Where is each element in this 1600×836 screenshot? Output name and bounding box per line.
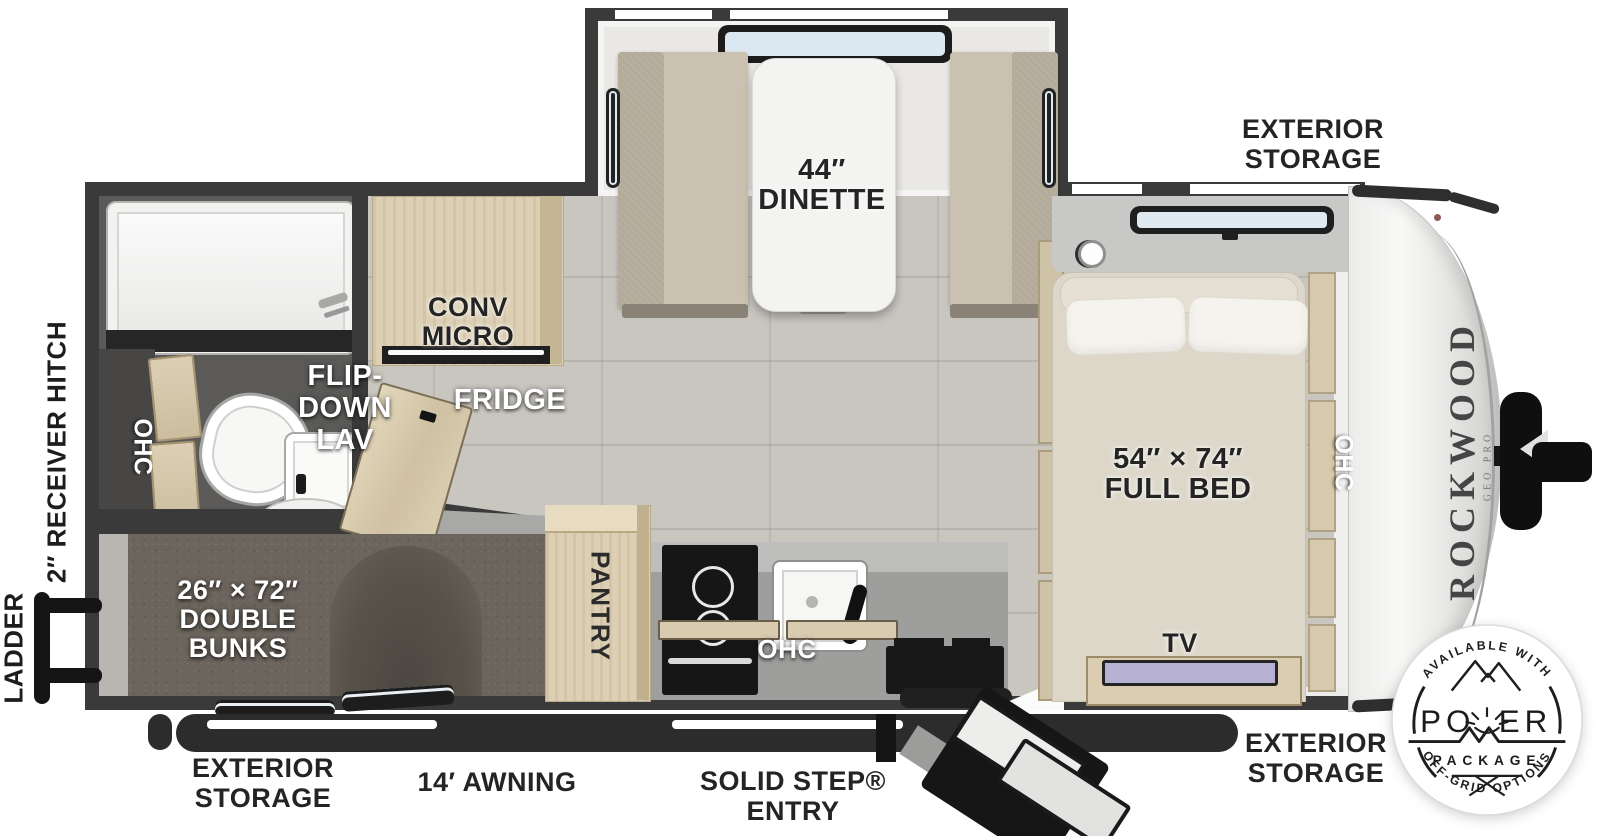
solid-step-entry-label: SOLID STEP®ENTRY — [668, 766, 918, 826]
step-bracket — [876, 714, 896, 762]
bedside-ohc-slat — [1308, 624, 1336, 692]
sink-faucet-icon — [296, 474, 306, 494]
bedroom-window-glass — [1137, 212, 1327, 228]
side-window — [1042, 88, 1056, 188]
burner-icon — [692, 566, 734, 608]
pantry-side — [637, 505, 649, 700]
power-package-badge: AVAILABLE WITH OFF-GRID OPTIONS PO ER PA… — [1389, 622, 1585, 818]
window-top-right-2 — [1190, 184, 1360, 194]
side-window — [606, 88, 620, 188]
ohc-label-kitchen: OHC — [757, 634, 817, 664]
lower-window-strip — [672, 720, 903, 729]
window-latch-icon — [1222, 230, 1238, 240]
receiver-hitch-label: 2″ RECEIVER HITCH — [42, 321, 73, 583]
pillow — [1187, 296, 1309, 356]
slideout-window — [615, 10, 712, 19]
fridge-label: FRIDGE — [430, 385, 590, 415]
flip-down-lav-label: FLIP-DOWNLAV — [270, 360, 420, 456]
full-bed-label: 54″ × 74″FULL BED — [1058, 444, 1298, 504]
pantry-label: PANTRY — [585, 551, 616, 661]
bench-base — [622, 304, 748, 318]
exterior-storage-label-bottom-left: EXTERIORSTORAGE — [163, 753, 363, 813]
marker-light-icon — [1434, 214, 1441, 221]
exterior-storage-label-top: EXTERIORSTORAGE — [1213, 114, 1413, 174]
awning-label: 14′ AWNING — [397, 767, 597, 797]
ohc-label-bedroom: OHC — [1329, 434, 1358, 491]
wheel-well — [330, 546, 482, 696]
double-bunks-label: 26″ × 72″DOUBLEBUNKS — [138, 576, 338, 663]
ladder-rung — [40, 598, 102, 613]
dinette-bench-back — [618, 52, 664, 308]
brand-sub-logo: GEO PRO — [1483, 431, 1494, 502]
wall-top-left — [85, 182, 598, 196]
conv-micro-label: CONVMICRO — [388, 293, 548, 351]
badge-package-text: PACKAGE — [1433, 753, 1542, 768]
tv-screen — [1102, 660, 1278, 686]
speaker-icon — [1078, 240, 1106, 268]
wall-rear — [85, 182, 99, 710]
bedside-ohc-slat — [1308, 272, 1336, 394]
lower-window-strip — [207, 720, 437, 729]
exterior-storage-label-bottom-right: EXTERIORSTORAGE — [1216, 728, 1416, 788]
pillow — [1065, 296, 1187, 356]
tv-label: TV — [1150, 628, 1210, 658]
bedside-ohc-slat — [1308, 538, 1336, 618]
oven-handle — [668, 658, 752, 664]
ladder-rung — [40, 668, 102, 683]
ohc-label-bathroom: OHC — [128, 418, 157, 475]
dinette-window-glass — [725, 32, 945, 56]
awning-end-cap — [148, 714, 172, 750]
slideout-wall-left — [585, 8, 598, 196]
window-top-right-1 — [1072, 184, 1142, 194]
dinette-label: 44″DINETTE — [742, 155, 902, 215]
pantry-top — [545, 505, 649, 533]
slideout-window — [730, 10, 948, 19]
hitch-coupler — [1532, 442, 1592, 482]
bathroom-wall — [85, 509, 368, 534]
bunk-wall-face — [99, 534, 128, 696]
furnace-tab — [952, 638, 990, 647]
furnace-tab — [894, 638, 944, 647]
brand-logo: ROCKWOOD — [1441, 319, 1483, 601]
ladder-label: LADDER — [0, 592, 30, 703]
floor-plan: ROCKWOOD GEO PRO 44″DINETTE EXTERIORSTOR… — [0, 0, 1600, 836]
sink-drain-icon — [806, 596, 818, 608]
cap-seam — [1448, 191, 1501, 215]
